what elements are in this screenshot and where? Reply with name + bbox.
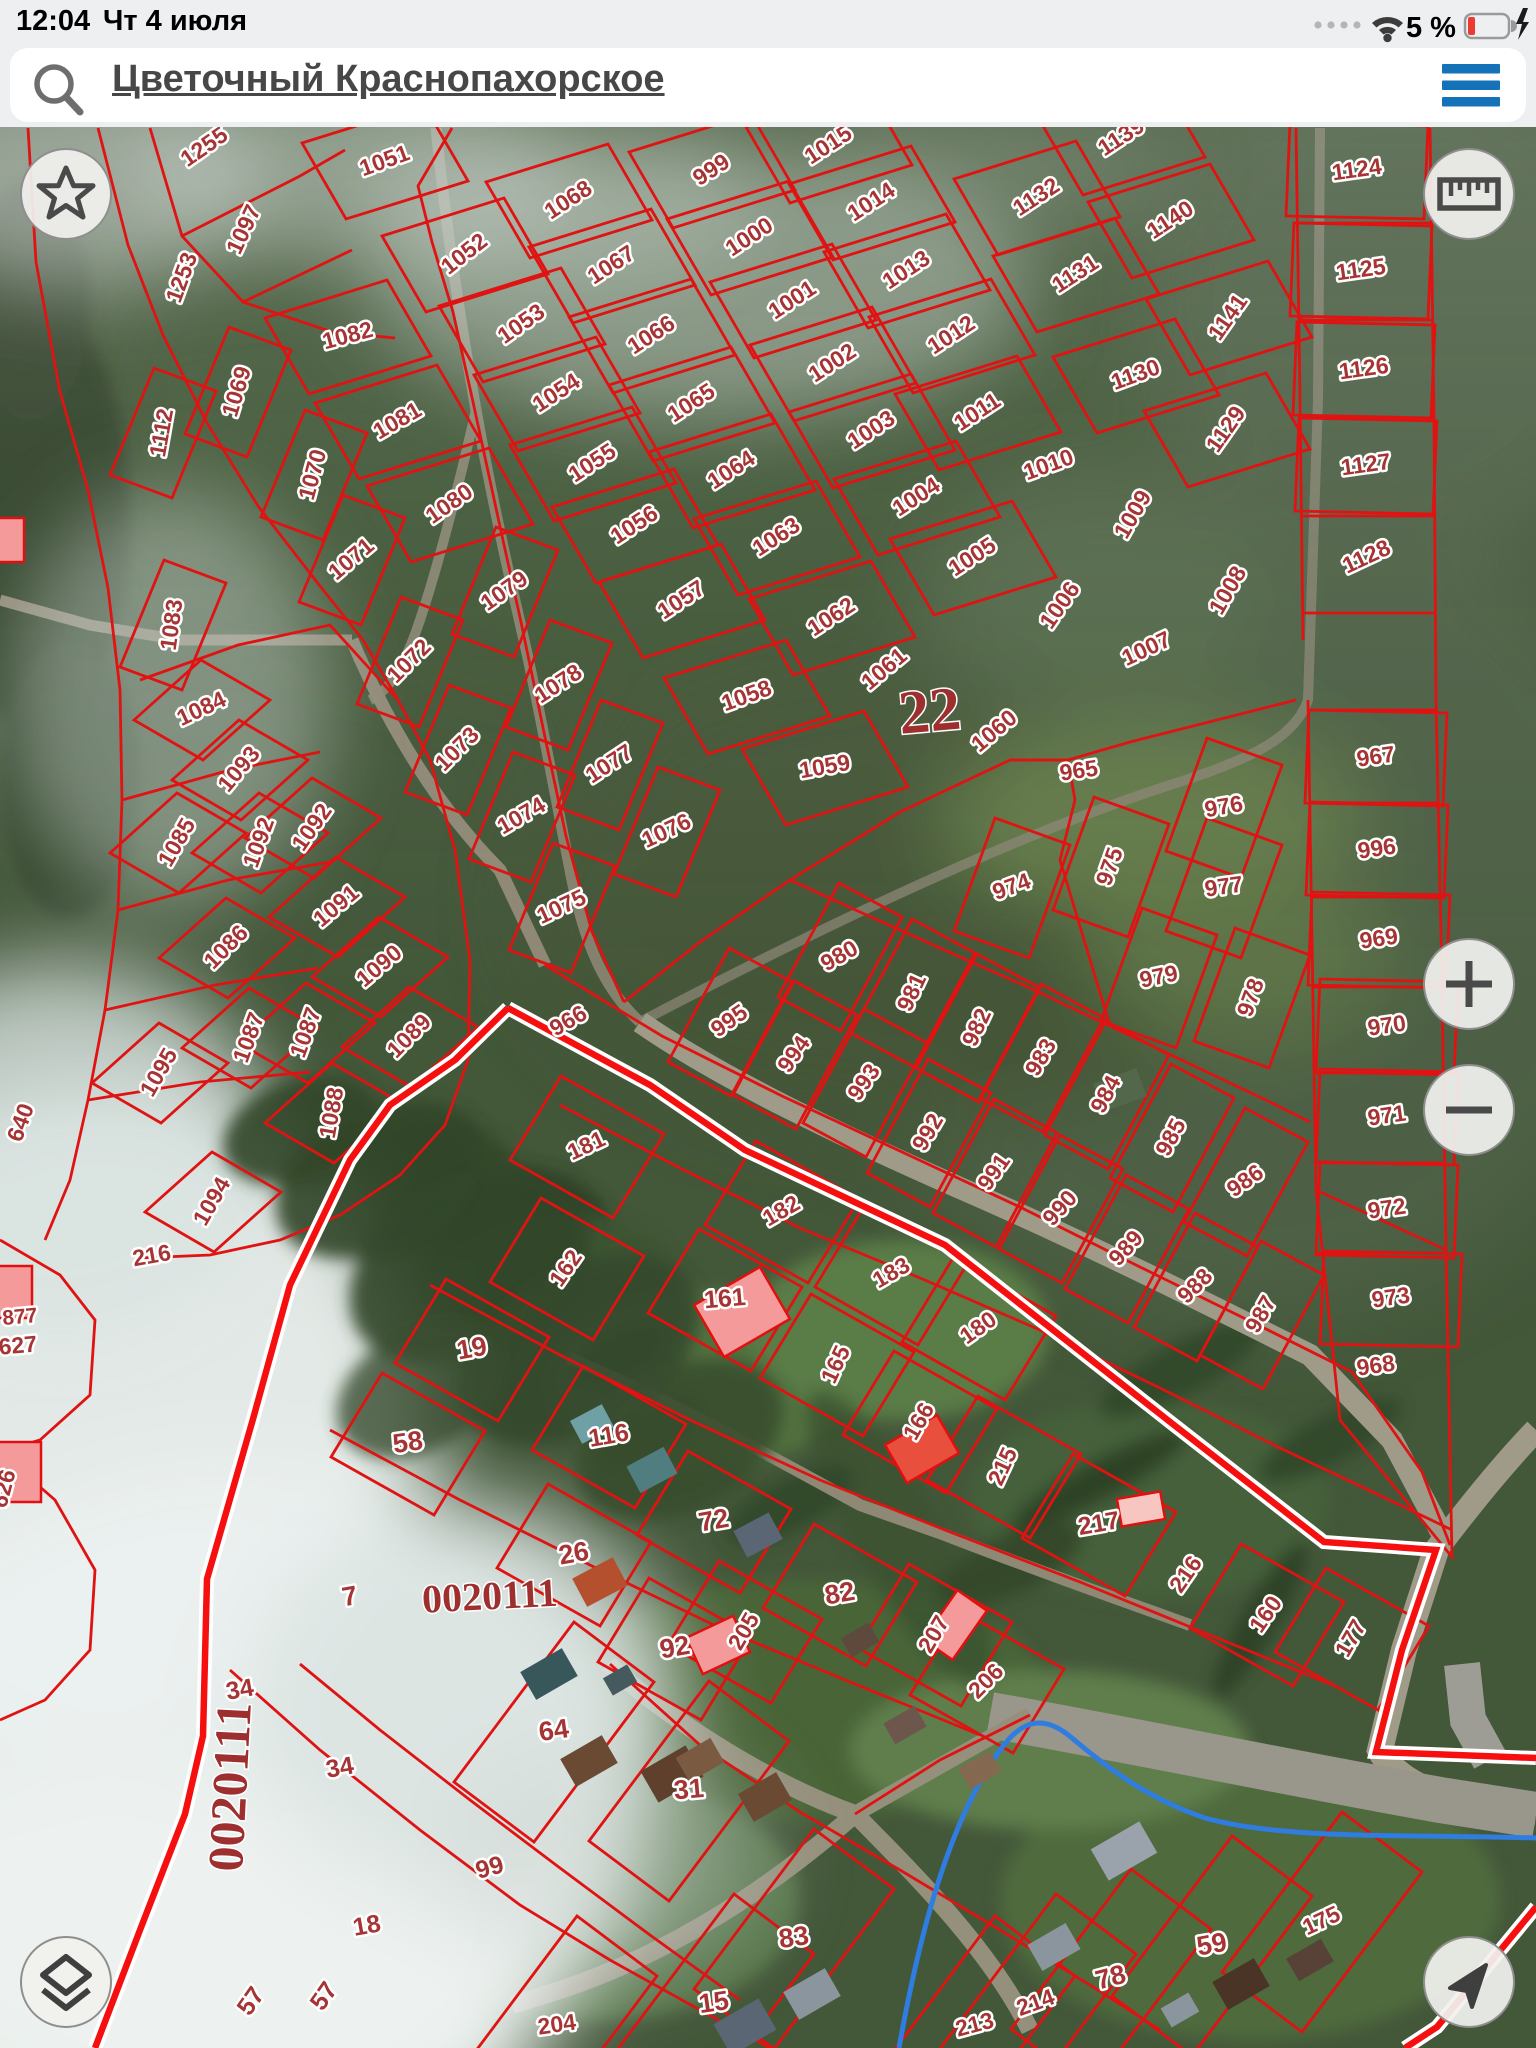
svg-text:31: 31	[673, 1773, 706, 1806]
svg-text:0020111: 0020111	[421, 1570, 559, 1622]
svg-text:877: 877	[1, 1304, 38, 1330]
svg-text:968: 968	[1355, 1350, 1397, 1381]
svg-text:26: 26	[556, 1536, 591, 1571]
svg-text:22: 22	[896, 675, 964, 748]
svg-text:34: 34	[224, 1673, 256, 1705]
svg-text:58: 58	[391, 1425, 425, 1459]
svg-text:83: 83	[777, 1920, 811, 1954]
svg-text:0020111: 0020111	[197, 1701, 262, 1873]
svg-text:92: 92	[657, 1630, 692, 1665]
svg-text:972: 972	[1366, 1193, 1408, 1224]
svg-text:204: 204	[536, 2009, 578, 2040]
svg-text:82: 82	[822, 1576, 857, 1611]
svg-text:18: 18	[351, 1909, 383, 1941]
svg-text:977: 977	[1203, 871, 1245, 902]
svg-text:967: 967	[1355, 741, 1397, 772]
svg-text:969: 969	[1358, 923, 1400, 954]
svg-text:72: 72	[696, 1503, 731, 1538]
svg-text:161: 161	[703, 1283, 747, 1315]
svg-text:996: 996	[1356, 833, 1398, 864]
svg-text:970: 970	[1366, 1010, 1408, 1041]
svg-text:19: 19	[454, 1331, 489, 1366]
svg-text:15: 15	[697, 1985, 731, 2019]
svg-text:971: 971	[1366, 1100, 1408, 1131]
svg-text:627: 627	[0, 1330, 38, 1359]
svg-text:59: 59	[1194, 1927, 1229, 1962]
svg-text:34: 34	[324, 1751, 356, 1783]
svg-text:973: 973	[1370, 1282, 1412, 1313]
svg-text:5 %: 5 %	[1406, 12, 1456, 44]
svg-text:64: 64	[537, 1713, 571, 1747]
svg-text:965: 965	[1058, 755, 1100, 786]
